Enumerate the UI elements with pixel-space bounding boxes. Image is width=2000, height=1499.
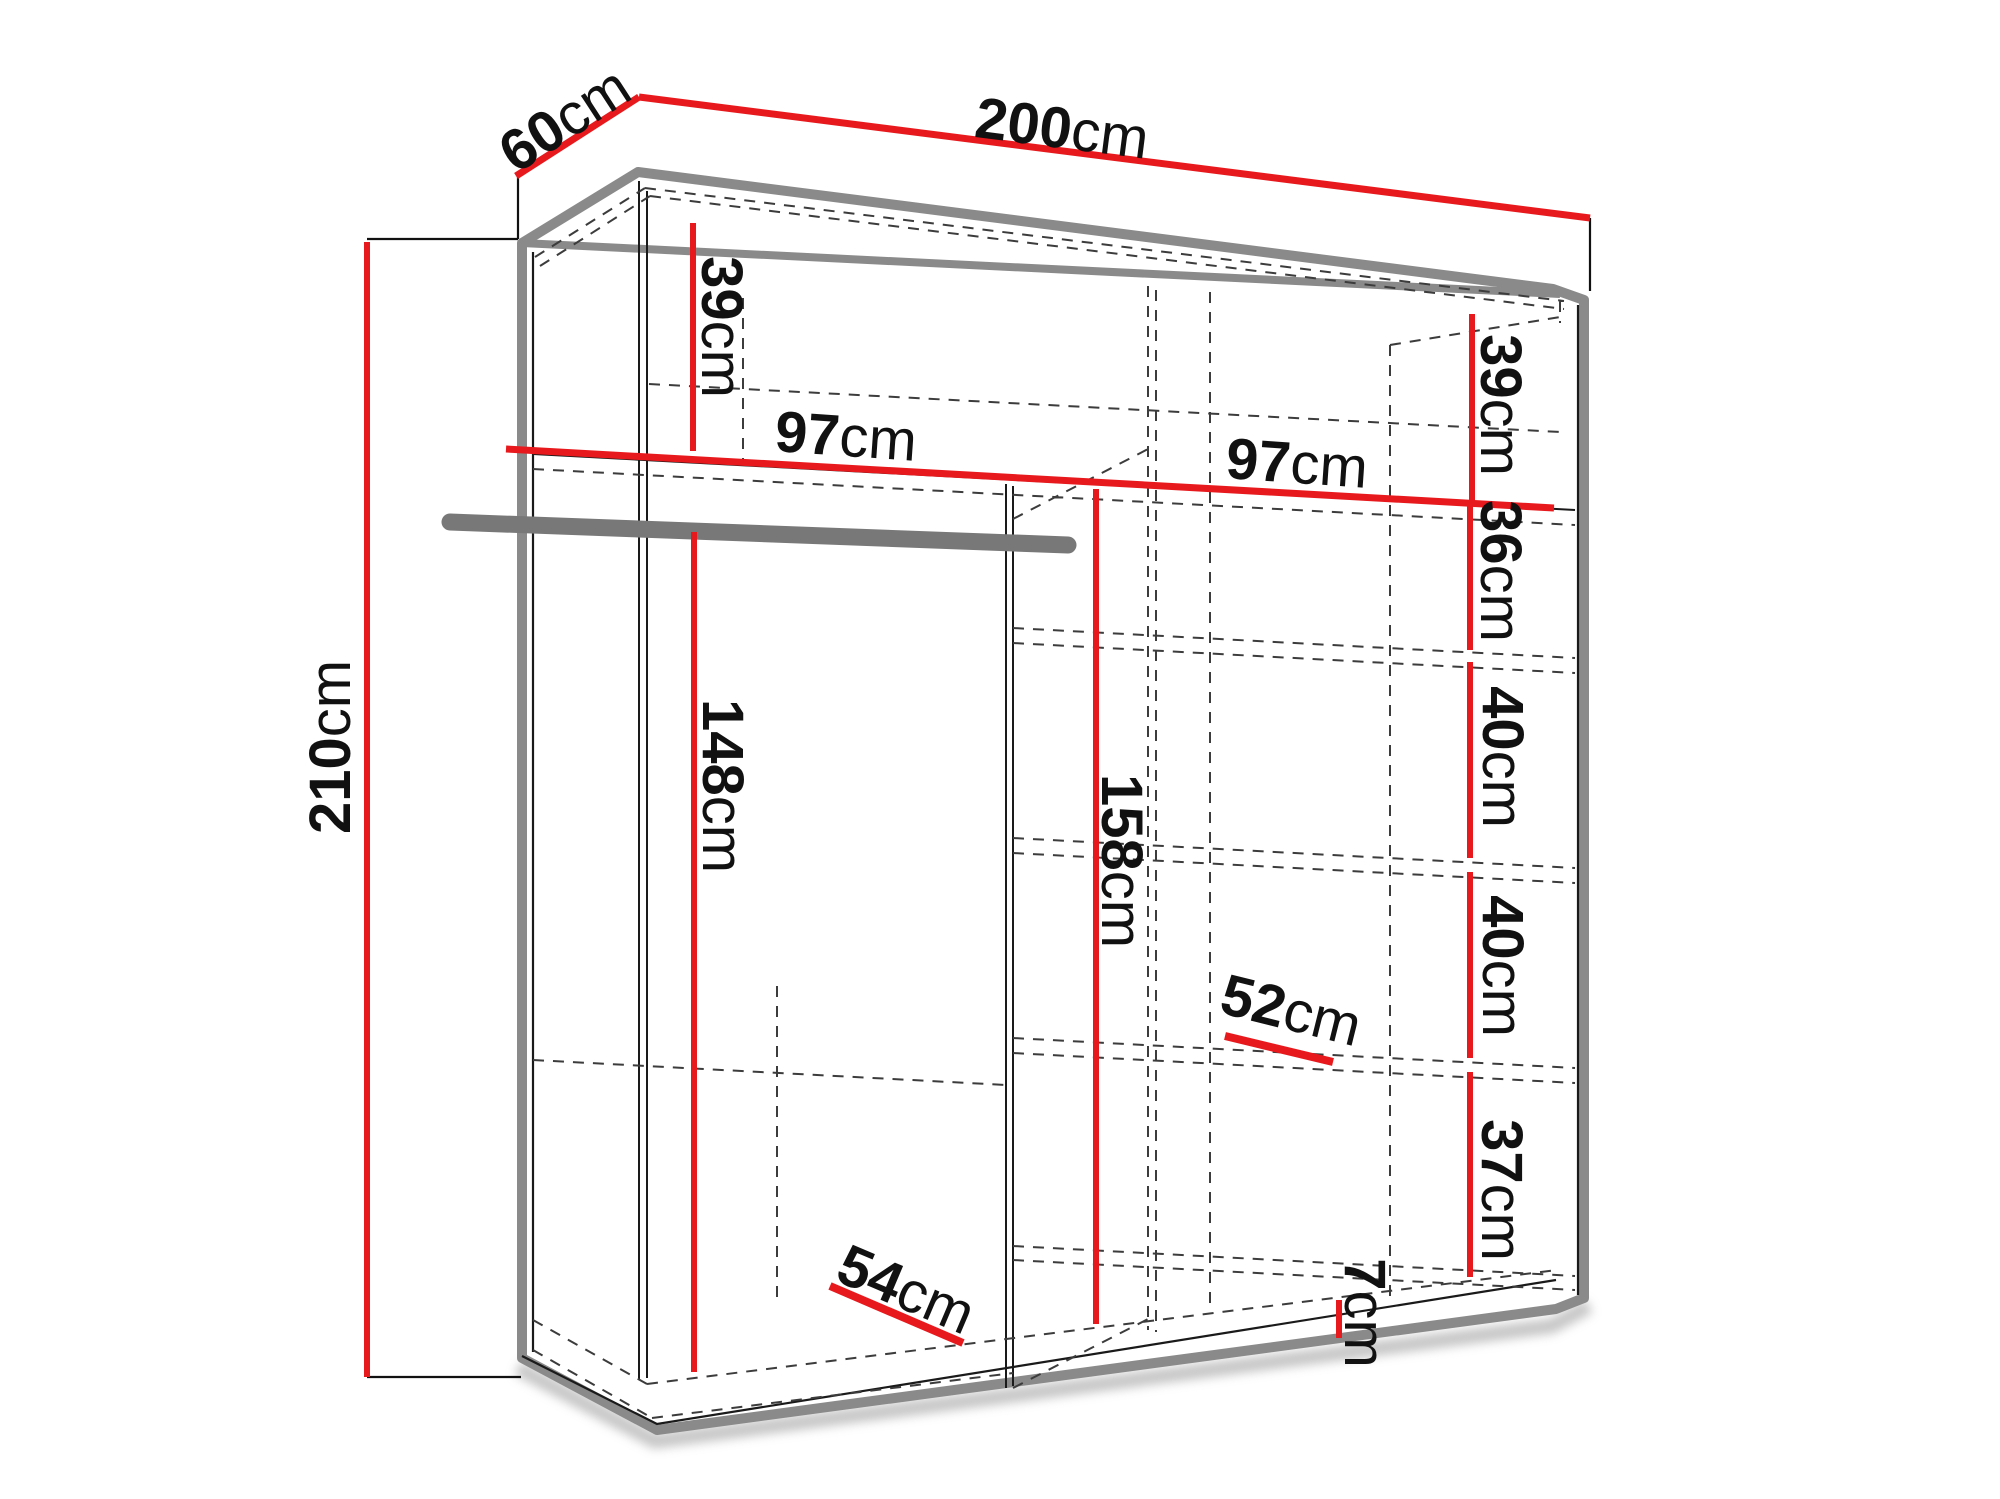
hang-space-label: 148cm xyxy=(690,699,755,873)
right-width-label: 97cm xyxy=(1224,426,1370,501)
mid-space-label: 158cm xyxy=(1089,774,1154,948)
plinth-label: 7cm xyxy=(1332,1258,1397,1368)
gap-40a-label: 40cm xyxy=(1470,686,1535,828)
gap-37-label: 37cm xyxy=(1469,1119,1534,1261)
diagram-canvas: 210cm 60cm 200cm 39cm 97cm 97cm 39cm 36c… xyxy=(0,0,2000,1499)
height-label: 210cm xyxy=(298,660,363,834)
wardrobe-dimension-diagram: 210cm 60cm 200cm 39cm 97cm 97cm 39cm 36c… xyxy=(0,0,2000,1499)
depth-label: 60cm xyxy=(488,54,642,186)
cabinet-outline xyxy=(522,172,1584,1430)
width-label: 200cm xyxy=(972,85,1153,172)
left-width-label: 97cm xyxy=(773,399,919,474)
cabinet-body xyxy=(450,172,1584,1430)
gap-40b-label: 40cm xyxy=(1470,895,1535,1037)
top-right-39-label: 39cm xyxy=(1468,334,1533,476)
gap-36-label: 36cm xyxy=(1468,500,1533,642)
top-left-39-label: 39cm xyxy=(689,256,754,398)
